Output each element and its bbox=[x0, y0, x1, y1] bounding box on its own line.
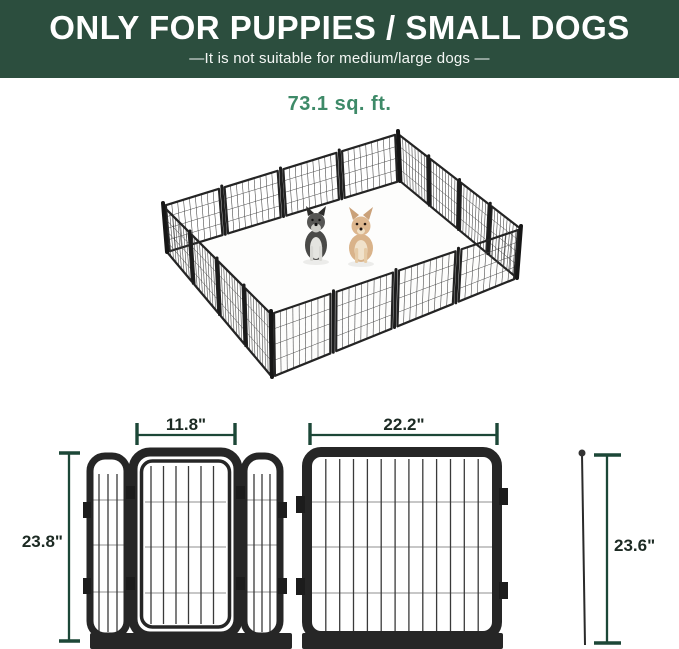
dimension-panel-height: 23.8" bbox=[22, 453, 80, 641]
dimension-stake-height: 23.6" bbox=[594, 455, 655, 643]
infographic-page: ONLY FOR PUPPIES / SMALL DOGS —It is not… bbox=[0, 0, 679, 649]
door-hinge bbox=[126, 486, 135, 499]
stake-height-label: 23.6" bbox=[614, 536, 655, 555]
banner-title: ONLY FOR PUPPIES / SMALL DOGS bbox=[0, 9, 679, 47]
ground-stake bbox=[579, 450, 586, 646]
warning-banner: ONLY FOR PUPPIES / SMALL DOGS —It is not… bbox=[0, 0, 679, 78]
door-width-label: 11.8" bbox=[166, 415, 206, 434]
door-panel-base bbox=[90, 633, 292, 649]
banner-subtitle: —It is not suitable for medium/large dog… bbox=[0, 50, 679, 67]
panel-base bbox=[302, 633, 503, 649]
dimension-door-width: 11.8" bbox=[137, 415, 235, 445]
panel-height-label: 23.8" bbox=[22, 532, 63, 551]
dimension-panel-width: 22.2" bbox=[310, 415, 497, 445]
panel-width-label: 22.2" bbox=[383, 415, 424, 434]
area-label: 73.1 sq. ft. bbox=[0, 93, 679, 116]
door-panel-diagram bbox=[83, 452, 292, 649]
dimension-diagrams: 11.8" 22.2" 23.8" 23.6" bbox=[0, 414, 679, 649]
door-hinge bbox=[126, 577, 135, 590]
panel-bars bbox=[326, 459, 478, 631]
door-frame bbox=[133, 452, 238, 636]
single-panel-diagram bbox=[296, 452, 508, 649]
panel-frame bbox=[307, 452, 497, 636]
door-leaf bbox=[142, 461, 230, 627]
playpen-isometric-illustration bbox=[130, 120, 550, 390]
